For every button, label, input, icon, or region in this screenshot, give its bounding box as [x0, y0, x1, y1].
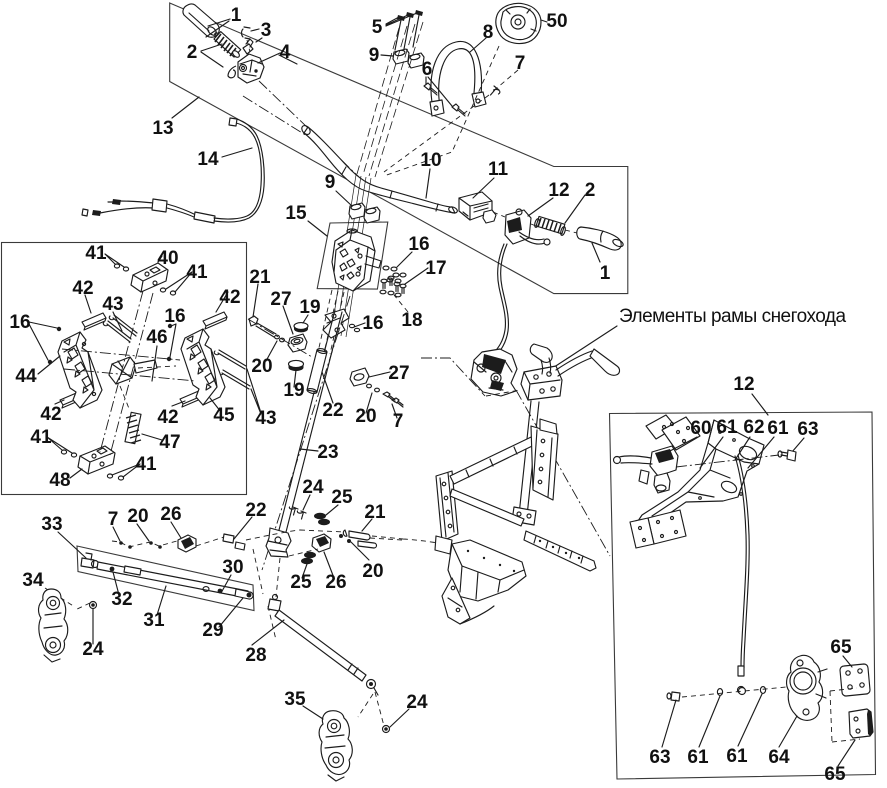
svg-text:42: 42 [40, 404, 61, 425]
svg-text:34: 34 [22, 570, 44, 591]
svg-text:41: 41 [135, 454, 157, 475]
svg-text:2: 2 [585, 180, 596, 201]
svg-text:43: 43 [255, 408, 276, 429]
svg-text:41: 41 [186, 262, 208, 283]
svg-text:16: 16 [9, 312, 30, 333]
svg-text:64: 64 [768, 747, 790, 768]
svg-text:25: 25 [290, 572, 312, 593]
svg-text:16: 16 [164, 306, 185, 327]
svg-text:22: 22 [245, 500, 266, 521]
svg-text:26: 26 [160, 504, 181, 525]
svg-text:46: 46 [146, 327, 167, 348]
svg-text:43: 43 [102, 294, 123, 315]
svg-text:Элементы рамы снегохода: Элементы рамы снегохода [619, 306, 847, 327]
svg-text:7: 7 [108, 509, 119, 530]
svg-text:2: 2 [187, 42, 198, 63]
svg-text:27: 27 [270, 289, 291, 310]
svg-text:11: 11 [488, 159, 509, 180]
svg-text:20: 20 [355, 406, 376, 427]
svg-text:1: 1 [231, 5, 242, 26]
svg-text:24: 24 [302, 477, 324, 498]
svg-text:21: 21 [364, 502, 386, 523]
svg-text:12: 12 [548, 180, 569, 201]
svg-text:25: 25 [331, 487, 353, 508]
svg-text:31: 31 [143, 610, 165, 631]
svg-text:42: 42 [157, 407, 178, 428]
svg-text:21: 21 [249, 267, 271, 288]
svg-text:28: 28 [245, 645, 266, 666]
svg-text:27: 27 [388, 363, 409, 384]
svg-text:24: 24 [406, 692, 428, 713]
svg-text:63: 63 [797, 419, 818, 440]
svg-text:33: 33 [41, 514, 62, 535]
svg-text:8: 8 [483, 22, 494, 43]
svg-text:44: 44 [15, 366, 37, 387]
svg-text:65: 65 [830, 637, 852, 658]
svg-text:47: 47 [159, 432, 180, 453]
svg-text:60: 60 [690, 418, 711, 439]
svg-text:42: 42 [219, 287, 240, 308]
svg-text:20: 20 [127, 506, 148, 527]
svg-text:19: 19 [299, 297, 320, 318]
svg-text:61: 61 [687, 747, 709, 768]
svg-text:32: 32 [111, 589, 132, 610]
svg-text:50: 50 [546, 11, 567, 32]
svg-text:45: 45 [213, 405, 235, 426]
svg-text:61: 61 [716, 417, 738, 438]
svg-text:5: 5 [372, 17, 383, 38]
svg-text:7: 7 [515, 53, 526, 74]
svg-text:48: 48 [49, 470, 70, 491]
svg-text:61: 61 [767, 418, 789, 439]
svg-text:63: 63 [649, 747, 670, 768]
svg-text:20: 20 [251, 356, 272, 377]
svg-text:9: 9 [325, 172, 336, 193]
svg-text:3: 3 [261, 20, 272, 41]
svg-text:61: 61 [726, 746, 748, 767]
svg-text:41: 41 [30, 427, 52, 448]
svg-text:16: 16 [362, 313, 383, 334]
svg-text:9: 9 [369, 45, 380, 66]
svg-text:10: 10 [420, 150, 441, 171]
svg-text:26: 26 [325, 572, 346, 593]
svg-text:7: 7 [393, 411, 404, 432]
svg-text:1: 1 [600, 263, 611, 284]
svg-text:4: 4 [280, 42, 291, 63]
svg-text:15: 15 [285, 203, 307, 224]
svg-text:41: 41 [85, 243, 107, 264]
svg-text:62: 62 [743, 417, 764, 438]
svg-text:12: 12 [733, 374, 754, 395]
svg-text:35: 35 [284, 689, 306, 710]
svg-text:13: 13 [152, 118, 173, 139]
svg-text:22: 22 [322, 400, 343, 421]
svg-text:18: 18 [401, 310, 422, 331]
svg-text:30: 30 [222, 557, 243, 578]
svg-text:6: 6 [422, 59, 433, 80]
svg-text:17: 17 [425, 258, 446, 279]
svg-text:14: 14 [197, 149, 219, 170]
svg-text:40: 40 [157, 248, 178, 269]
svg-text:65: 65 [824, 764, 846, 785]
svg-text:20: 20 [362, 561, 383, 582]
svg-text:29: 29 [202, 620, 223, 641]
svg-text:24: 24 [82, 639, 104, 660]
svg-text:23: 23 [317, 442, 338, 463]
svg-text:42: 42 [72, 278, 93, 299]
svg-text:19: 19 [283, 380, 304, 401]
svg-text:16: 16 [408, 234, 429, 255]
